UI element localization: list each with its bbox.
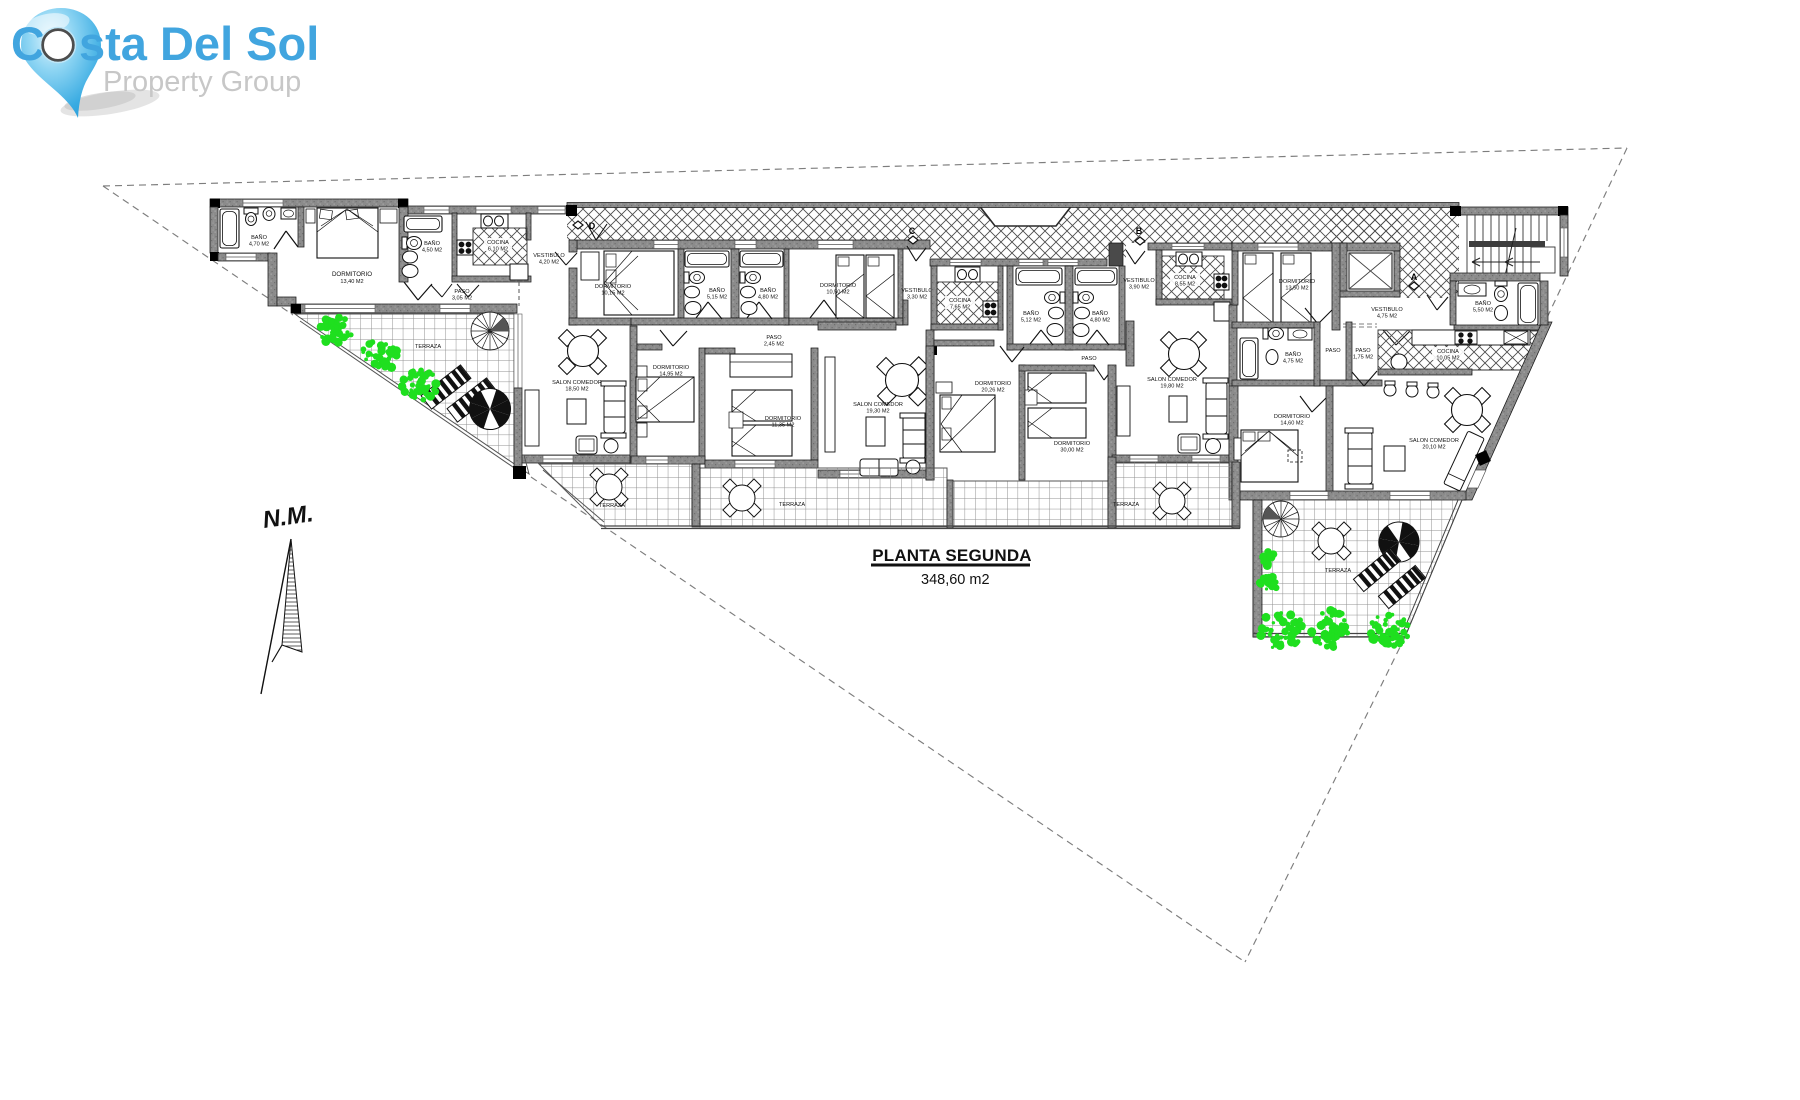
svg-text:COCINA: COCINA (949, 298, 971, 304)
svg-text:4,75 M2: 4,75 M2 (1283, 359, 1303, 365)
svg-text:A: A (1411, 272, 1418, 282)
svg-text:TERRAZA: TERRAZA (1325, 568, 1351, 574)
svg-text:18,50 M2: 18,50 M2 (565, 387, 588, 393)
svg-text:DORMITORIO: DORMITORIO (1274, 414, 1311, 420)
svg-text:6,10 M2: 6,10 M2 (488, 247, 508, 253)
svg-text:SALON COMEDOR: SALON COMEDOR (552, 380, 602, 386)
svg-text:DORMITORIO: DORMITORIO (1054, 441, 1091, 447)
svg-text:COCINA: COCINA (487, 240, 509, 246)
svg-text:13,40 M2: 13,40 M2 (340, 279, 363, 285)
svg-text:BAÑO: BAÑO (1285, 351, 1302, 358)
svg-text:4,80 M2: 4,80 M2 (1090, 318, 1110, 324)
svg-text:TERRAZA: TERRAZA (415, 344, 441, 350)
svg-text:14,60 M2: 14,60 M2 (1280, 421, 1303, 427)
svg-text:D: D (589, 221, 596, 231)
svg-text:C: C (909, 226, 916, 236)
svg-text:SALON COMEDOR: SALON COMEDOR (853, 402, 903, 408)
svg-text:PASO: PASO (1081, 356, 1097, 362)
svg-text:COCINA: COCINA (1437, 349, 1459, 355)
svg-text:BAÑO: BAÑO (251, 234, 268, 241)
svg-text:TERRAZA: TERRAZA (1113, 502, 1139, 508)
svg-text:5,50 M2: 5,50 M2 (1473, 308, 1493, 314)
svg-text:DORMITORIO: DORMITORIO (1279, 279, 1316, 285)
svg-text:DORMITORIO: DORMITORIO (765, 416, 802, 422)
svg-text:4,80 M2: 4,80 M2 (758, 295, 778, 301)
svg-text:2,45 M2: 2,45 M2 (764, 342, 784, 348)
svg-text:30,00 M2: 30,00 M2 (1060, 448, 1083, 454)
svg-text:PASO: PASO (766, 335, 782, 341)
svg-text:7,65 M2: 7,65 M2 (950, 305, 970, 311)
svg-text:TERRAZA: TERRAZA (599, 503, 625, 509)
svg-text:20,26 M2: 20,26 M2 (981, 388, 1004, 394)
svg-text:14,95 M2: 14,95 M2 (659, 372, 682, 378)
svg-text:5,15 M2: 5,15 M2 (707, 295, 727, 301)
svg-text:B: B (1136, 226, 1143, 236)
svg-text:4,20 M2: 4,20 M2 (539, 260, 559, 266)
svg-text:PASO: PASO (1355, 348, 1371, 354)
svg-text:10,05 M2: 10,05 M2 (1436, 356, 1459, 362)
svg-text:3,30 M2: 3,30 M2 (907, 295, 927, 301)
svg-text:8,55 M2: 8,55 M2 (1175, 282, 1195, 288)
svg-text:10,15 M2: 10,15 M2 (601, 291, 624, 297)
svg-text:10,50 M2: 10,50 M2 (826, 290, 849, 296)
svg-text:BAÑO: BAÑO (1092, 310, 1109, 317)
svg-text:SALON COMEDOR: SALON COMEDOR (1409, 438, 1459, 444)
svg-text:VESTIBULO: VESTIBULO (1371, 307, 1403, 313)
svg-text:5,12 M2: 5,12 M2 (1021, 318, 1041, 324)
svg-text:Property Group: Property Group (103, 66, 301, 98)
svg-text:VESTIBULO: VESTIBULO (533, 253, 565, 259)
svg-text:4,75 M2: 4,75 M2 (1377, 314, 1397, 320)
svg-text:BAÑO: BAÑO (424, 240, 441, 247)
svg-text:13,50 M2: 13,50 M2 (1285, 286, 1308, 292)
svg-text:4,70 M2: 4,70 M2 (249, 242, 269, 248)
svg-text:BAÑO: BAÑO (760, 287, 777, 294)
svg-text:20,10 M2: 20,10 M2 (1422, 445, 1445, 451)
svg-text:DORMITORIO: DORMITORIO (820, 283, 857, 289)
svg-text:TERRAZA: TERRAZA (779, 502, 805, 508)
svg-text:1,75 M2: 1,75 M2 (1353, 355, 1373, 361)
svg-text:19,80 M2: 19,80 M2 (1160, 384, 1183, 390)
svg-text:PASO: PASO (1325, 348, 1341, 354)
svg-text:BAÑO: BAÑO (709, 287, 726, 294)
svg-text:19,30 M2: 19,30 M2 (866, 409, 889, 415)
svg-text:VESTIBULO: VESTIBULO (901, 288, 933, 294)
svg-text:DORMITORIO: DORMITORIO (975, 381, 1012, 387)
svg-text:11,35 M2: 11,35 M2 (772, 423, 795, 429)
svg-text:DORMITORIO: DORMITORIO (595, 284, 632, 290)
svg-text:COCINA: COCINA (1174, 275, 1196, 281)
svg-text:4,50 M2: 4,50 M2 (422, 248, 442, 254)
svg-text:3,90 M2: 3,90 M2 (1129, 285, 1149, 291)
svg-text:SALON COMEDOR: SALON COMEDOR (1147, 377, 1197, 383)
svg-text:BAÑO: BAÑO (1023, 310, 1040, 317)
svg-text:sta Del Sol: sta Del Sol (79, 17, 319, 70)
svg-text:348,60 m2: 348,60 m2 (921, 572, 990, 588)
svg-text:DORMITORIO: DORMITORIO (332, 271, 372, 278)
svg-text:PLANTA SEGUNDA: PLANTA SEGUNDA (872, 546, 1032, 565)
svg-text:DORMITORIO: DORMITORIO (653, 365, 690, 371)
svg-text:VESTIBULO: VESTIBULO (1123, 278, 1155, 284)
svg-text:BAÑO: BAÑO (1475, 300, 1492, 307)
